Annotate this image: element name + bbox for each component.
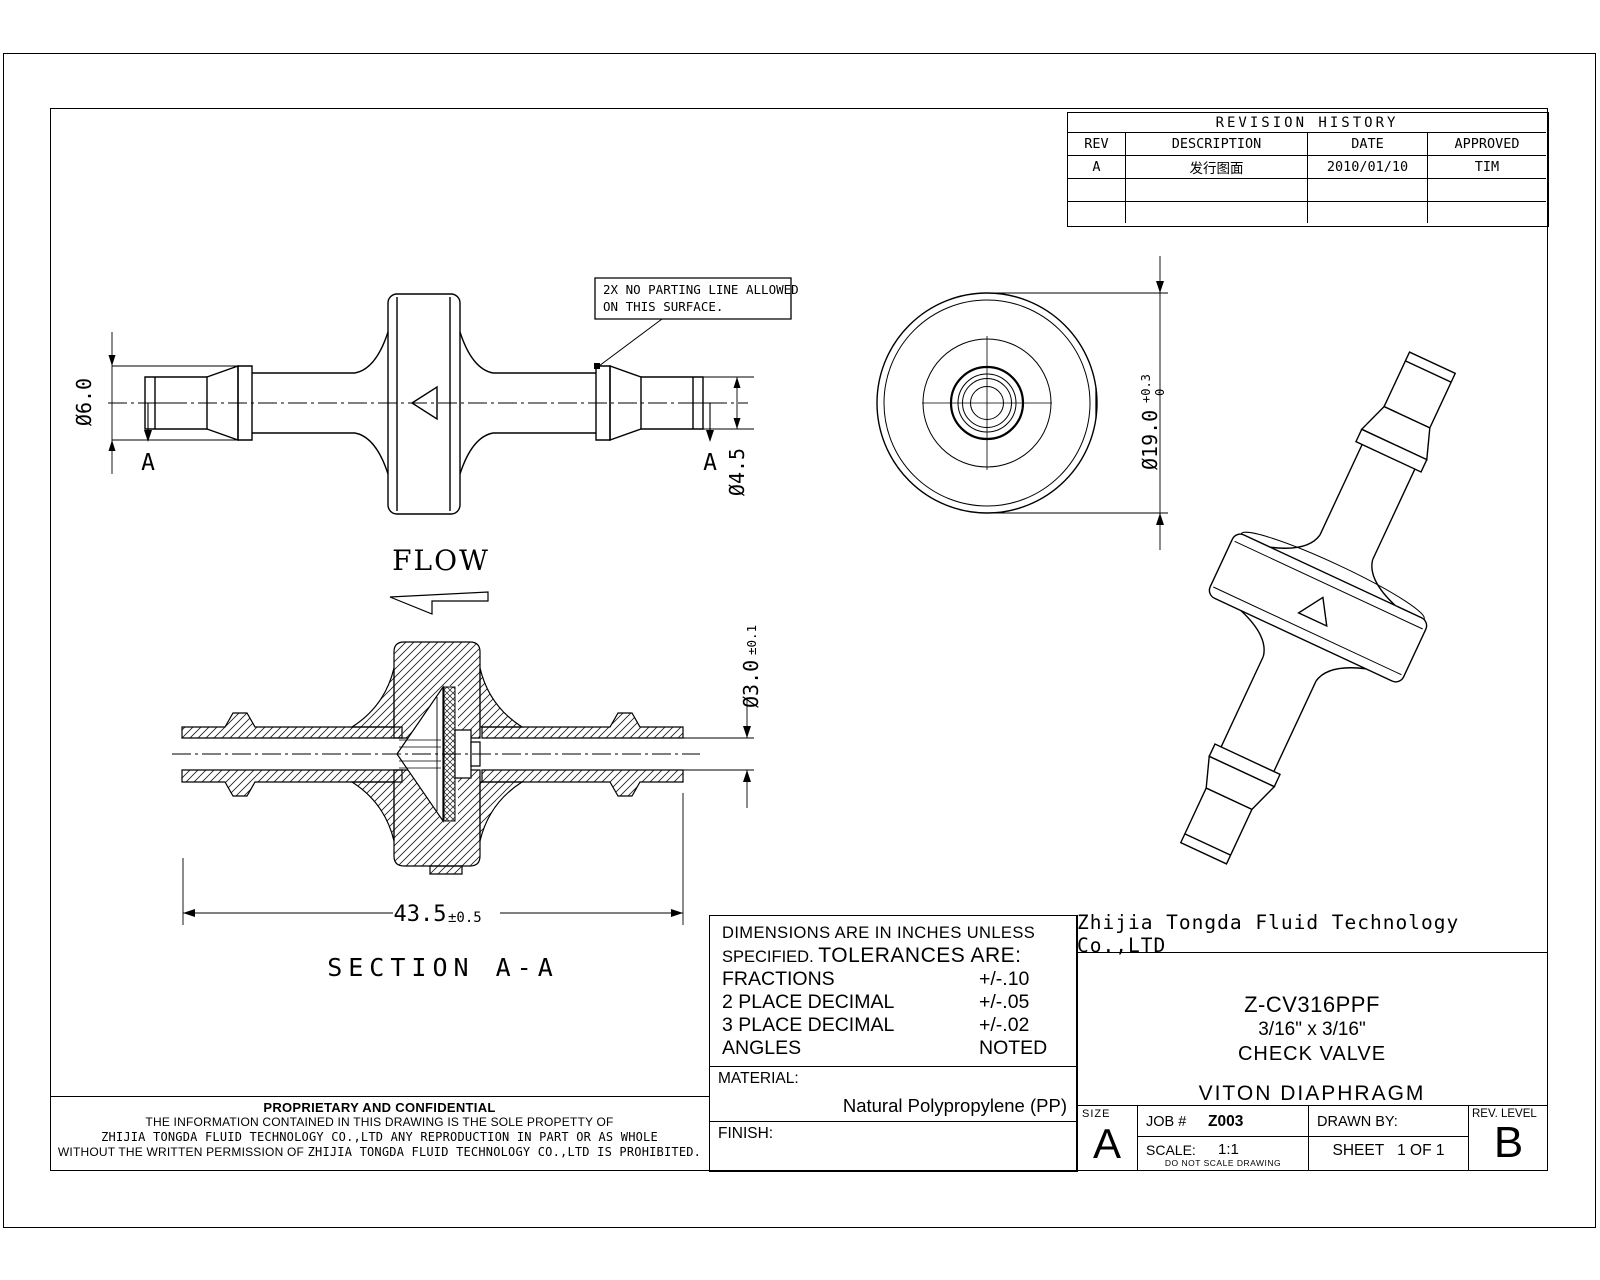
dim-length-text: 43.5	[394, 902, 447, 927]
tolerance-row-fractions: FRACTIONS +/-.10	[722, 968, 1065, 991]
tolerance-value: +/-.10	[979, 968, 1065, 991]
revision-row-description	[1126, 179, 1308, 202]
scale-label: SCALE:	[1146, 1142, 1196, 1158]
title-block: Zhijia Tongda Fluid Technology Co.,LTD Z…	[1076, 915, 1547, 1170]
material-row: MATERIAL: Natural Polypropylene (PP)	[710, 1067, 1077, 1122]
note-line1: 2X NO PARTING LINE ALLOWED	[603, 282, 799, 297]
tolerance-row-angles: ANGLES NOTED	[722, 1037, 1065, 1060]
revision-table-title: REVISION HISTORY	[1068, 113, 1546, 133]
job-value: Z003	[1208, 1113, 1243, 1131]
tolerance-row-3place: 3 PLACE DECIMAL +/-.02	[722, 1014, 1065, 1037]
drawn-by-label: DRAWN BY:	[1317, 1114, 1398, 1130]
size-value: A	[1077, 1120, 1137, 1168]
revision-col-description: DESCRIPTION	[1126, 133, 1308, 156]
dim-barb-od-text: Ø6.0	[72, 378, 96, 426]
size-cell: SIZE A	[1077, 1106, 1138, 1171]
dim-body-od-text: Ø19.0	[1138, 410, 1162, 470]
tolerance-row-2place: 2 PLACE DECIMAL +/-.05	[722, 991, 1065, 1014]
dim-length-tol: ±0.5	[448, 910, 482, 926]
section-marker-a-left: A	[141, 450, 155, 476]
tolerance-name: 2 PLACE DECIMAL	[722, 991, 894, 1014]
part-type: CHECK VALVE	[1077, 1043, 1547, 1066]
scale-value: 1:1	[1218, 1141, 1239, 1158]
section-view	[172, 642, 700, 874]
tolerance-value: NOTED	[979, 1037, 1065, 1060]
revision-col-rev: REV	[1068, 133, 1126, 156]
tolerance-notes: DIMENSIONS ARE IN INCHES UNLESS SPECIFIE…	[710, 916, 1077, 1067]
dim-bore-tol: ±0.1	[744, 625, 759, 655]
flow-arrow-icon	[390, 592, 488, 614]
tolerance-value: +/-.05	[979, 991, 1065, 1014]
revision-col-date: DATE	[1308, 133, 1428, 156]
dim-body-od-tol-plus: +0.3	[1139, 374, 1153, 403]
drawn-sheet-cell: DRAWN BY: SHEET 1 OF 1	[1309, 1106, 1469, 1171]
tolerance-line1: DIMENSIONS ARE IN INCHES UNLESS	[722, 924, 1065, 943]
revision-row-approved	[1428, 202, 1546, 223]
proprietary-line1: THE INFORMATION CONTAINED IN THIS DRAWIN…	[50, 1115, 709, 1130]
company-name: Zhijia Tongda Fluid Technology Co.,LTD	[1077, 915, 1547, 953]
sheet-value: 1 OF 1	[1397, 1142, 1444, 1159]
dim-bore-text: Ø3.0	[739, 660, 763, 708]
material-note: VITON DIAPHRAGM	[1077, 1082, 1547, 1106]
parting-line-note: 2X NO PARTING LINE ALLOWED ON THIS SURFA…	[594, 278, 799, 369]
flow-indicator: FLOW	[390, 544, 490, 614]
isometric-view	[1107, 318, 1529, 899]
revision-row-rev: A	[1068, 156, 1126, 179]
drawing-sheet: Ø6.0 A A Ø4.5 2X NO PARTING LINE ALLOWED…	[0, 0, 1600, 1280]
revision-row-date	[1308, 179, 1428, 202]
dim-body-od-tol-minus: 0	[1153, 389, 1167, 396]
part-number: Z-CV316PPF	[1077, 992, 1547, 1018]
section-marker-a-right: A	[703, 450, 717, 476]
proprietary-line3a: WITHOUT THE WRITTEN PERMISSION OF	[58, 1145, 304, 1159]
proprietary-line2: ZHIJIA TONGDA FLUID TECHNOLOGY CO.,LTD A…	[50, 1130, 709, 1145]
proprietary-line3b: ZHIJIA TONGDA FLUID TECHNOLOGY CO.,LTD I…	[308, 1145, 702, 1159]
job-scale-cell: JOB # Z003 SCALE: 1:1 DO NOT SCALE DRAWI…	[1138, 1106, 1309, 1171]
flow-label: FLOW	[392, 544, 490, 577]
finish-row: FINISH:	[710, 1122, 1077, 1171]
dim-bore: Ø3.0 ±0.1	[683, 625, 763, 808]
sheet-info: SHEET 1 OF 1	[1309, 1142, 1468, 1160]
revision-history-table: REVISION HISTORY REV DESCRIPTION DATE AP…	[1067, 112, 1549, 227]
size-spec: 3/16" x 3/16"	[1077, 1019, 1547, 1041]
revision-row-description: 发行图面	[1126, 156, 1308, 179]
material-value: Natural Polypropylene (PP)	[843, 1095, 1067, 1117]
rev-level-cell: REV. LEVEL B	[1469, 1106, 1548, 1171]
tolerance-name: 3 PLACE DECIMAL	[722, 1014, 894, 1037]
revision-row-description	[1126, 202, 1308, 223]
proprietary-title: PROPRIETARY AND CONFIDENTIAL	[50, 1100, 709, 1115]
front-view	[877, 293, 1097, 513]
sheet-label: SHEET	[1333, 1142, 1385, 1159]
material-label: MATERIAL:	[718, 1070, 799, 1088]
scale-note: DO NOT SCALE DRAWING	[1138, 1158, 1308, 1168]
note-line2: ON THIS SURFACE.	[603, 299, 723, 314]
tolerance-line2-prefix: SPECIFIED.	[722, 948, 814, 966]
revision-row-date	[1308, 202, 1428, 223]
tolerance-name: ANGLES	[722, 1037, 801, 1060]
revision-row-date: 2010/01/10	[1308, 156, 1428, 179]
tolerance-block: DIMENSIONS ARE IN INCHES UNLESS SPECIFIE…	[709, 915, 1078, 1172]
job-label: JOB #	[1146, 1114, 1186, 1130]
tolerance-value: +/-.02	[979, 1014, 1065, 1037]
section-label: SECTION A-A	[327, 953, 559, 982]
proprietary-block: PROPRIETARY AND CONFIDENTIAL THE INFORMA…	[50, 1096, 709, 1170]
revision-row-rev	[1068, 179, 1126, 202]
finish-label: FINISH:	[718, 1125, 773, 1143]
revision-row-rev	[1068, 202, 1126, 223]
tolerance-line2-main: TOLERANCES ARE:	[818, 944, 1021, 967]
revision-row-approved	[1428, 179, 1546, 202]
dim-tip-od-text: Ø4.5	[725, 448, 749, 496]
title-block-band: SIZE A JOB # Z003 SCALE: 1:1 DO NOT SCAL…	[1077, 1105, 1547, 1171]
tolerance-line2: SPECIFIED. TOLERANCES ARE:	[722, 944, 1065, 968]
tolerance-name: FRACTIONS	[722, 968, 835, 991]
rev-level-value: B	[1469, 1118, 1548, 1168]
proprietary-line3: WITHOUT THE WRITTEN PERMISSION OF ZHIJIA…	[50, 1145, 709, 1160]
revision-row-approved: TIM	[1428, 156, 1546, 179]
size-label: SIZE	[1082, 1108, 1110, 1120]
title-block-main: Z-CV316PPF 3/16" x 3/16" CHECK VALVE VIT…	[1077, 952, 1547, 1105]
revision-col-approved: APPROVED	[1428, 133, 1546, 156]
